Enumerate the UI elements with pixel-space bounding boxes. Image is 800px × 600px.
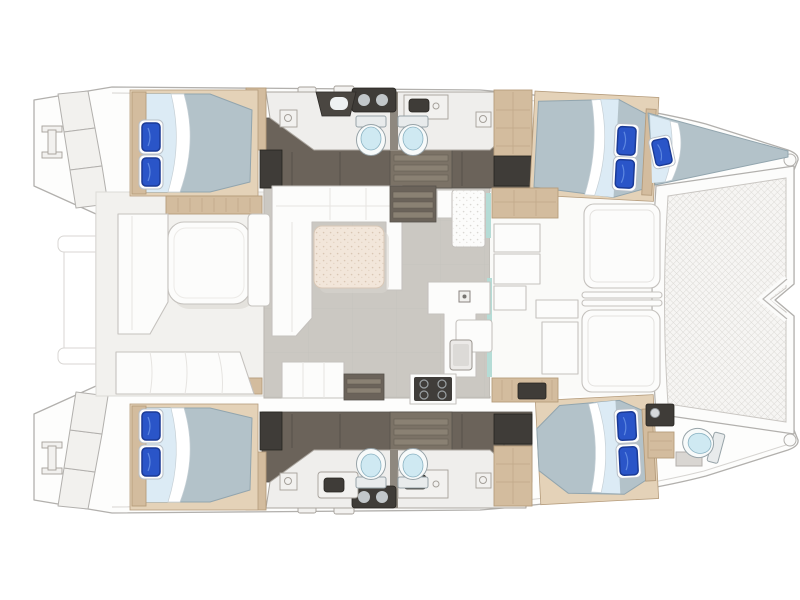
galley-steps <box>344 374 384 400</box>
twin-sink-unit <box>352 88 396 112</box>
bow-tip-starboard <box>784 434 796 446</box>
floorplan-canvas <box>0 0 800 600</box>
step-treads <box>394 155 448 181</box>
pillow <box>139 155 163 189</box>
pillow <box>139 120 163 154</box>
aft-bench <box>116 352 254 394</box>
slat <box>582 300 662 306</box>
side-locker <box>437 190 453 218</box>
counter-fixture <box>459 291 470 302</box>
vanity-counter-dark <box>316 92 356 116</box>
slat <box>582 292 662 298</box>
shower-fixture <box>476 473 491 488</box>
step-treads <box>394 419 448 445</box>
toilet <box>398 116 428 156</box>
galley-sink <box>450 340 472 370</box>
shower-fixture <box>280 473 297 490</box>
vanity-counter-white <box>318 472 358 498</box>
cabin-forward-port <box>530 91 659 201</box>
cabinet <box>648 432 674 458</box>
side-bench <box>248 214 270 306</box>
step-module <box>494 286 526 310</box>
sun-seat-lower <box>582 310 660 392</box>
bench-module <box>542 322 578 374</box>
locker-top <box>492 188 558 218</box>
pillow <box>139 409 163 443</box>
cabin-aft-port <box>130 90 258 196</box>
pillow <box>614 123 640 158</box>
vanity-counter-white <box>404 95 448 119</box>
saloon-entry-steps <box>390 186 436 222</box>
counter <box>646 404 674 426</box>
cabin-aft-starboard <box>130 404 258 510</box>
pillow <box>139 445 163 479</box>
pillow <box>612 156 638 191</box>
toilet <box>398 449 428 489</box>
catamaran-floorplan <box>0 0 800 600</box>
cockpit-step-top <box>166 196 262 214</box>
stove <box>410 374 456 404</box>
l-bench <box>118 214 168 334</box>
cabin-forward-starboard <box>535 395 658 505</box>
saloon-table-texture <box>314 226 384 288</box>
basin <box>651 409 660 418</box>
step-module <box>494 224 540 252</box>
pillow <box>616 443 642 478</box>
shower-fixture <box>476 112 491 127</box>
heads-starboard <box>266 449 526 509</box>
cabinet <box>282 362 344 398</box>
bench-module <box>536 300 578 318</box>
sun-seat-upper <box>584 204 660 288</box>
nav-seat <box>452 190 485 247</box>
locker-bottom <box>492 378 558 402</box>
shower-fixture <box>280 110 297 127</box>
twin-sink-unit <box>352 486 396 508</box>
cockpit-table <box>168 222 250 304</box>
step-module <box>494 254 540 284</box>
bow-trampoline <box>652 154 796 446</box>
toilet <box>356 116 386 156</box>
toilet <box>356 449 386 489</box>
pillow <box>614 408 640 443</box>
